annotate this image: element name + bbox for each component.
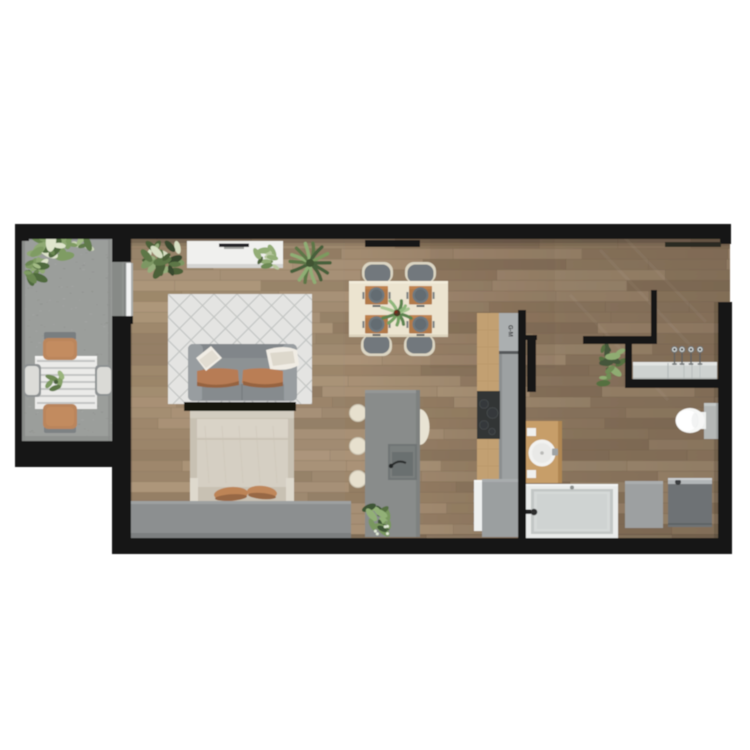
svg-text:G-M: G-M: [507, 325, 513, 337]
